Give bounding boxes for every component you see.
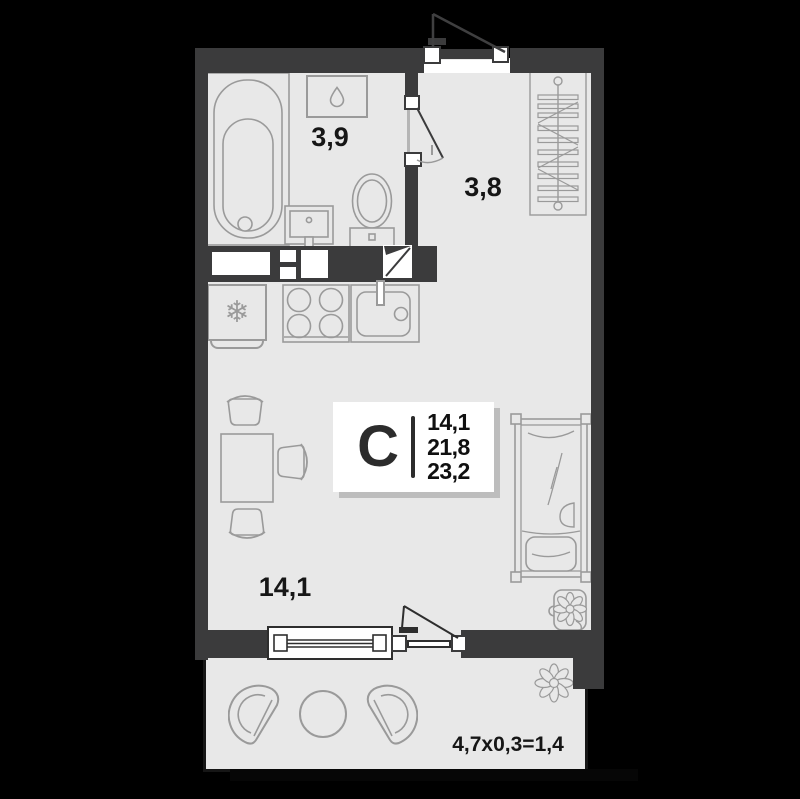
balcony-door-swing-icon (398, 604, 464, 642)
window-glazing-icon (269, 628, 391, 658)
entrance-door-swing-icon (425, 10, 515, 55)
vent-shaft-small-top (280, 250, 296, 262)
dining-set-icon (213, 392, 315, 542)
apartment-type-letter: С (357, 418, 399, 476)
fridge-icon: ❄ (207, 284, 267, 341)
bathroom-door-swing-icon (412, 100, 454, 172)
hallway-area-label: 3,8 (448, 172, 518, 203)
bed-icon (510, 413, 592, 583)
chair-right-icon (278, 444, 307, 480)
vent-shaft-wide (212, 252, 270, 275)
toilet-icon (349, 172, 395, 250)
chair-top-icon (227, 396, 263, 425)
bathtub-icon (206, 72, 291, 247)
wall-left (195, 48, 208, 660)
living-area-value: 14,1 (427, 410, 470, 435)
wall-top-left (195, 48, 424, 73)
balcony-flower-icon (531, 660, 577, 706)
water-heater-icon (306, 75, 368, 118)
living-area-label: 14,1 (240, 572, 330, 603)
wall-bathroom-right-lower (405, 160, 418, 252)
window-frame (267, 626, 393, 660)
bathroom-area-label: 3,9 (295, 122, 365, 153)
wall-room-bottom-right (461, 630, 604, 658)
area-values: 14,1 21,8 23,2 (427, 410, 470, 484)
bathroom-door-frame-line (407, 106, 410, 156)
vent-shaft-diagonal-icon (383, 245, 412, 278)
snowflake-icon: ❄ (224, 298, 249, 328)
floorplan-canvas: ❄ С 14,1 21,8 23, (0, 0, 800, 799)
apartment-info-card: С 14,1 21,8 23,2 (333, 402, 494, 492)
balcony-chair-left-icon (228, 684, 290, 750)
wardrobe-icon (529, 71, 587, 217)
fridge-handle (210, 340, 264, 349)
balcony-railing (230, 769, 638, 781)
vent-shaft-small-bottom (280, 267, 296, 279)
wall-room-bottom-left (195, 630, 271, 658)
wall-right (591, 48, 604, 688)
total-area-value: 23,2 (427, 459, 470, 484)
balcony-area-label: 4,7x0,3=1,4 (428, 733, 588, 757)
water-drop-icon (329, 86, 345, 108)
plant-pot-icon (546, 584, 592, 636)
balcony-chair-right-icon (356, 684, 418, 750)
balcony-door-handle (399, 627, 418, 633)
apartment-area-value: 21,8 (427, 435, 470, 460)
dining-table (221, 434, 273, 502)
wall-top-right (510, 48, 604, 73)
vent-shaft-square (301, 250, 328, 278)
kitchen-sink-icon (350, 284, 420, 343)
balcony-table-icon (298, 689, 348, 739)
chair-bottom-icon (229, 509, 265, 538)
kitchen-faucet-icon (376, 280, 385, 306)
info-card-divider (411, 416, 415, 478)
stove-icon (282, 284, 350, 343)
wall-balcony-pillar (573, 656, 604, 689)
